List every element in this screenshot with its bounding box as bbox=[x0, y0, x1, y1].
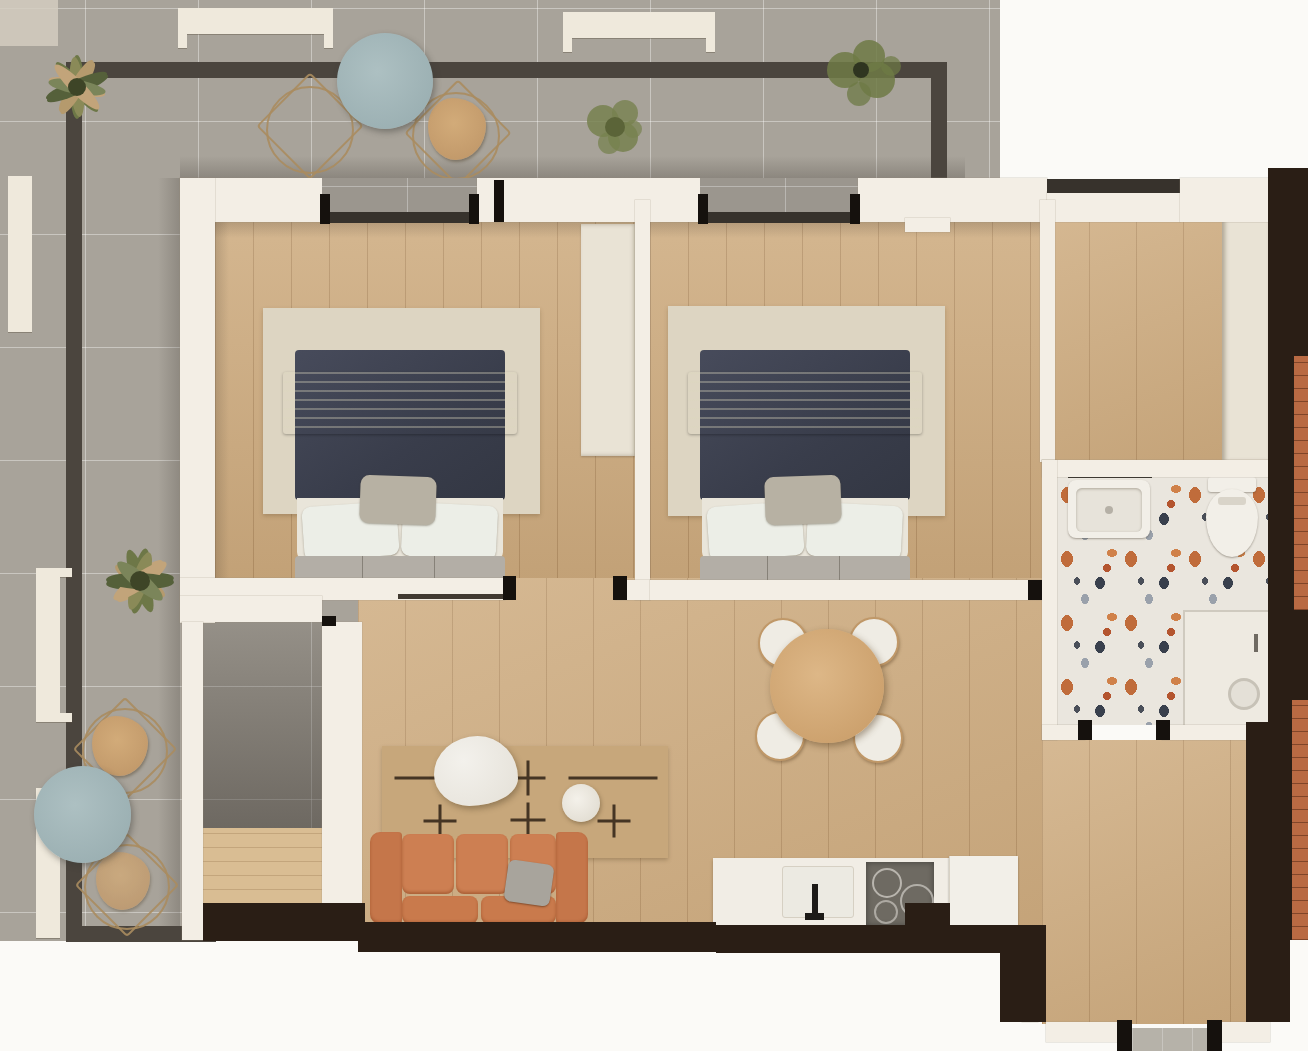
wall-top-window-strip bbox=[1047, 192, 1180, 222]
floor-shadow bbox=[650, 222, 1042, 238]
wall-top-4 bbox=[1180, 178, 1270, 222]
window-bedroom-2-sill bbox=[700, 212, 858, 223]
bedroom-1-door-leaf bbox=[398, 594, 506, 599]
kitchen-sink bbox=[782, 866, 854, 918]
wall-top-2 bbox=[477, 178, 700, 222]
brick-strip-1 bbox=[1294, 356, 1308, 610]
ledge-top-1 bbox=[178, 8, 333, 34]
ledge-top-1-tab-l bbox=[178, 34, 187, 48]
shower-drain bbox=[1228, 678, 1260, 710]
bedroom-1-bed-throw bbox=[283, 372, 517, 434]
shower-floor bbox=[1183, 610, 1272, 727]
railing-right bbox=[931, 62, 947, 180]
refrigerator bbox=[949, 856, 1018, 930]
entry-door-mat bbox=[1132, 1028, 1207, 1051]
kitchen-faucet-base bbox=[805, 913, 824, 920]
terrace-door-threshold bbox=[203, 828, 322, 904]
ledge-left-1 bbox=[8, 176, 32, 332]
ledge-top-2-tab-l bbox=[563, 38, 572, 52]
jamb bbox=[1117, 1020, 1132, 1051]
jamb bbox=[613, 576, 627, 600]
jamb bbox=[320, 194, 330, 224]
wall-entry-south-2 bbox=[1222, 1022, 1270, 1042]
dark-wall-entry-west bbox=[1000, 930, 1046, 1022]
wall-bathroom-north bbox=[1042, 460, 1270, 477]
wall-bathroom-west bbox=[1042, 460, 1057, 740]
bedroom-2-cushion bbox=[764, 475, 842, 526]
jamb bbox=[322, 616, 336, 626]
ledge-top-2-tab-r bbox=[706, 38, 715, 52]
sofa-left-arm bbox=[370, 832, 402, 924]
bedroom-1-wardrobe bbox=[581, 224, 637, 456]
jamb bbox=[1028, 580, 1042, 600]
ledge-top-2 bbox=[563, 12, 715, 38]
cooktop-burner-1 bbox=[872, 868, 902, 898]
hall-built-in-closet bbox=[1222, 200, 1268, 462]
floor-plan bbox=[0, 0, 1308, 1051]
dark-wall-kitchen-pier bbox=[905, 903, 950, 927]
floor-shadow bbox=[215, 222, 229, 578]
coffee-table bbox=[434, 736, 518, 806]
wall-entry-south-1 bbox=[1046, 1022, 1117, 1042]
dark-wall-entry-east bbox=[1246, 722, 1290, 1022]
window-bedroom-2 bbox=[700, 178, 858, 214]
wall-living-west bbox=[322, 622, 362, 912]
jamb bbox=[698, 194, 708, 224]
jamb bbox=[1156, 720, 1170, 740]
plant-shrub-top-center bbox=[570, 82, 660, 172]
wall-bedroom-2-south bbox=[650, 580, 1042, 600]
cooktop-burner-3 bbox=[874, 900, 898, 924]
bathroom-sink-drain bbox=[1105, 506, 1113, 514]
side-pouf bbox=[562, 784, 600, 822]
wall-bedroom-divider bbox=[635, 200, 650, 600]
plant-bromeliad-left bbox=[85, 525, 195, 637]
jamb bbox=[1078, 720, 1092, 740]
plant-shrub-top-right bbox=[808, 22, 918, 122]
ledge-top-1-tab-r bbox=[324, 34, 333, 48]
jamb bbox=[850, 194, 860, 224]
sofa-seat-front-1 bbox=[402, 896, 478, 924]
nook-shadow bbox=[203, 600, 322, 830]
dark-wall-nook-south bbox=[203, 903, 365, 941]
wall-bedroom-2-east bbox=[1040, 200, 1055, 462]
bedroom-2-bed-throw bbox=[688, 372, 922, 434]
window-hall-lintel bbox=[1047, 179, 1180, 193]
floor-shadow bbox=[215, 222, 635, 238]
sofa-toss-pillow bbox=[503, 859, 554, 907]
ledge-left-2 bbox=[36, 568, 60, 722]
brick-strip-2 bbox=[1292, 700, 1308, 940]
dark-wall-living-south bbox=[358, 922, 716, 952]
jamb bbox=[469, 194, 479, 224]
wall-nook-top bbox=[180, 596, 322, 622]
ledge-left-2-tab-b bbox=[60, 713, 72, 722]
jamb bbox=[503, 576, 516, 600]
window-bedroom-1-sill bbox=[322, 212, 477, 223]
jamb bbox=[494, 180, 504, 222]
bedroom-2-foot-bench bbox=[700, 556, 910, 583]
terrace-table-south bbox=[34, 766, 131, 863]
ledge-left-2-tab-t bbox=[60, 568, 72, 577]
plant-bromeliad-top-left bbox=[22, 32, 132, 142]
dark-wall-kitchen-south bbox=[716, 925, 1046, 953]
wall-top-3 bbox=[858, 178, 1047, 222]
sofa-cushion-1 bbox=[402, 834, 454, 894]
terrace-table-north bbox=[337, 33, 433, 129]
bedroom-1-cushion bbox=[359, 475, 437, 526]
wall-nook-west bbox=[182, 622, 203, 940]
window-bedroom-1 bbox=[322, 178, 477, 214]
shower-valve bbox=[1254, 634, 1258, 652]
toilet-seat-button bbox=[1218, 497, 1246, 505]
dining-table bbox=[770, 629, 884, 743]
hall-floor bbox=[1042, 200, 1222, 462]
wall-left-bedroom-1 bbox=[180, 178, 215, 623]
jamb bbox=[1207, 1020, 1222, 1051]
sofa-right-arm bbox=[556, 832, 588, 924]
wall-top-3-jog bbox=[905, 218, 950, 232]
sofa-cushion-2 bbox=[456, 834, 508, 894]
entry-floor bbox=[1042, 740, 1248, 1024]
